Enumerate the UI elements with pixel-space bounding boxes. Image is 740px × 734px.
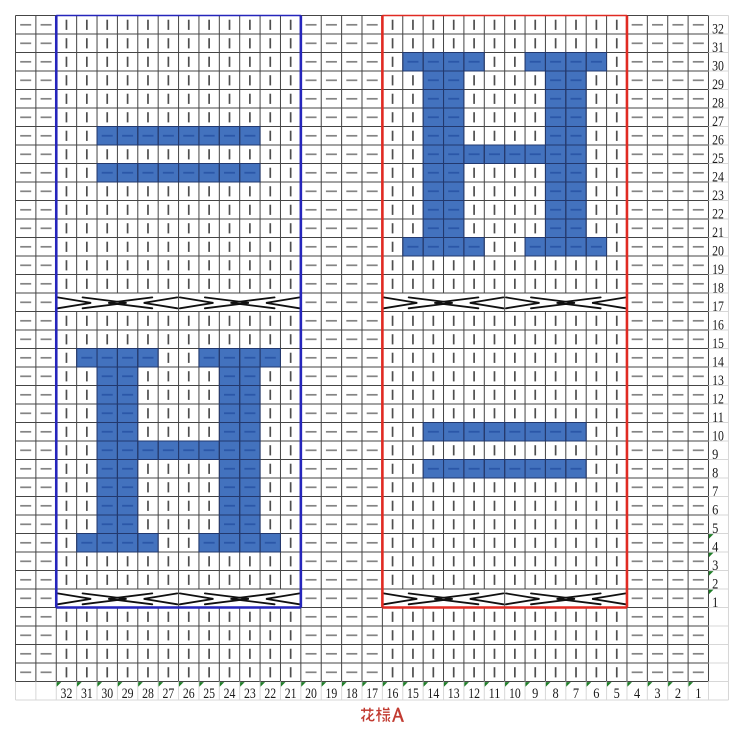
svg-text:22: 22 bbox=[264, 685, 276, 702]
svg-text:22: 22 bbox=[712, 205, 724, 222]
svg-text:15: 15 bbox=[407, 685, 419, 702]
svg-text:8: 8 bbox=[553, 685, 560, 702]
svg-text:20: 20 bbox=[712, 242, 724, 259]
svg-text:5: 5 bbox=[614, 685, 620, 702]
svg-text:9: 9 bbox=[712, 446, 718, 463]
svg-text:17: 17 bbox=[712, 298, 724, 315]
svg-text:13: 13 bbox=[712, 372, 724, 389]
svg-text:13: 13 bbox=[448, 685, 460, 702]
svg-text:12: 12 bbox=[468, 685, 480, 702]
svg-text:1: 1 bbox=[695, 685, 701, 702]
svg-text:7: 7 bbox=[573, 685, 580, 702]
svg-text:20: 20 bbox=[305, 685, 317, 702]
svg-text:10: 10 bbox=[712, 427, 724, 444]
svg-text:1: 1 bbox=[712, 594, 718, 611]
svg-text:11: 11 bbox=[489, 685, 501, 702]
svg-text:31: 31 bbox=[712, 39, 724, 56]
svg-text:28: 28 bbox=[712, 94, 724, 111]
svg-text:30: 30 bbox=[101, 685, 113, 702]
svg-text:16: 16 bbox=[387, 685, 399, 702]
svg-text:11: 11 bbox=[712, 409, 724, 426]
svg-text:32: 32 bbox=[61, 685, 73, 702]
svg-text:29: 29 bbox=[712, 76, 724, 93]
svg-text:18: 18 bbox=[346, 685, 358, 702]
svg-text:23: 23 bbox=[244, 685, 256, 702]
svg-text:15: 15 bbox=[712, 335, 724, 352]
svg-text:29: 29 bbox=[122, 685, 134, 702]
svg-text:7: 7 bbox=[712, 483, 719, 500]
svg-text:4: 4 bbox=[634, 685, 641, 702]
svg-text:21: 21 bbox=[285, 685, 297, 702]
svg-text:16: 16 bbox=[712, 316, 724, 333]
svg-text:6: 6 bbox=[593, 685, 600, 702]
svg-text:14: 14 bbox=[712, 353, 724, 370]
svg-text:12: 12 bbox=[712, 390, 724, 407]
svg-text:19: 19 bbox=[326, 685, 338, 702]
svg-text:28: 28 bbox=[142, 685, 154, 702]
svg-text:18: 18 bbox=[712, 279, 724, 296]
svg-text:6: 6 bbox=[712, 501, 719, 518]
svg-text:21: 21 bbox=[712, 224, 724, 241]
svg-text:31: 31 bbox=[81, 685, 93, 702]
svg-text:8: 8 bbox=[712, 464, 719, 481]
svg-text:32: 32 bbox=[712, 20, 724, 37]
svg-text:17: 17 bbox=[366, 685, 378, 702]
svg-text:9: 9 bbox=[532, 685, 538, 702]
svg-text:25: 25 bbox=[203, 685, 215, 702]
svg-text:19: 19 bbox=[712, 261, 724, 278]
svg-text:2: 2 bbox=[675, 685, 681, 702]
svg-text:25: 25 bbox=[712, 150, 724, 167]
svg-text:14: 14 bbox=[427, 685, 439, 702]
svg-text:24: 24 bbox=[224, 685, 236, 702]
svg-text:10: 10 bbox=[509, 685, 521, 702]
svg-text:27: 27 bbox=[162, 685, 174, 702]
svg-text:30: 30 bbox=[712, 57, 724, 74]
svg-text:26: 26 bbox=[712, 131, 724, 148]
svg-text:24: 24 bbox=[712, 168, 724, 185]
svg-text:27: 27 bbox=[712, 113, 724, 130]
svg-text:23: 23 bbox=[712, 187, 724, 204]
svg-text:26: 26 bbox=[183, 685, 195, 702]
svg-text:3: 3 bbox=[654, 685, 660, 702]
